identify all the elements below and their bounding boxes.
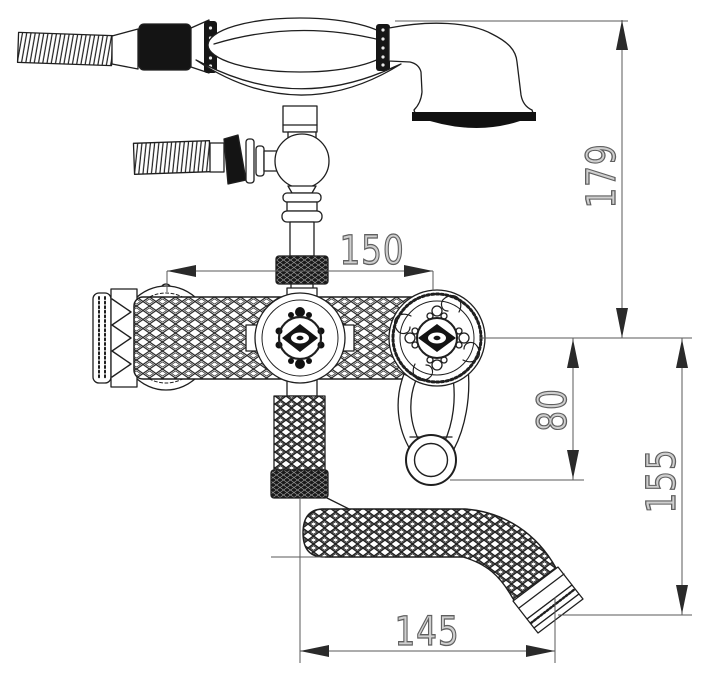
hose-connector-cone [112,29,138,69]
right-handwheel [389,290,485,386]
arrowhead-down [676,585,688,614]
coupling-nut [271,470,328,498]
arrowhead-up [676,339,688,368]
riser-column [275,132,329,299]
shower-handset [208,18,392,72]
faucet-line-art [0,0,710,678]
arrowhead-right [404,265,433,277]
dimension-label-145: 145 [394,612,459,652]
arrowhead-down [616,308,628,338]
lower-riser-pipe [271,396,349,509]
knurled-collar [276,256,328,284]
arrowhead-right [526,645,555,657]
arrowhead-up [616,20,628,50]
arrowhead-left [300,645,329,657]
hose-nut [224,135,246,184]
ball-elbow [275,134,329,188]
technical-drawing-page: 179 150 80 155 145 [0,0,710,678]
dimension-label-80: 80 [533,388,573,431]
shower-hose [18,20,217,73]
arrowhead-down [567,450,579,479]
dimension-label-179: 179 [582,143,622,208]
left-end-cap [93,289,137,387]
handset-grip [139,24,191,70]
dimension-label-155: 155 [642,448,682,513]
spray-face [412,112,536,121]
supply-hose [133,135,282,184]
center-medallion [255,293,345,383]
spray-head [389,23,536,128]
dimension-label-150: 150 [339,231,404,271]
lever-ring [406,435,456,485]
arrowhead-left [167,265,196,277]
arrowhead-up [567,339,579,368]
